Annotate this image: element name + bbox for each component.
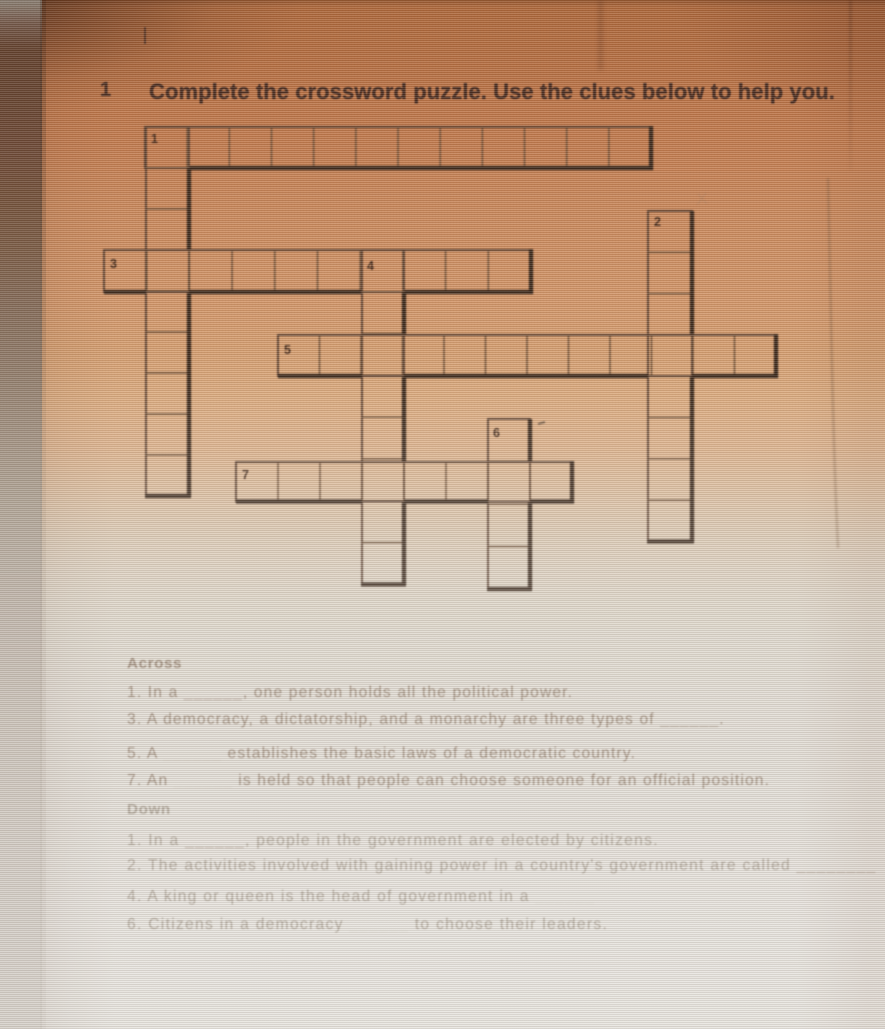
svg-text:1: 1 [151, 132, 158, 146]
svg-text:7: 7 [242, 468, 249, 482]
svg-text:4: 4 [367, 259, 374, 273]
svg-text:2: 2 [654, 215, 661, 229]
svg-text:5: 5 [284, 343, 291, 357]
svg-text:6: 6 [493, 426, 500, 440]
svg-text:3: 3 [110, 257, 117, 271]
